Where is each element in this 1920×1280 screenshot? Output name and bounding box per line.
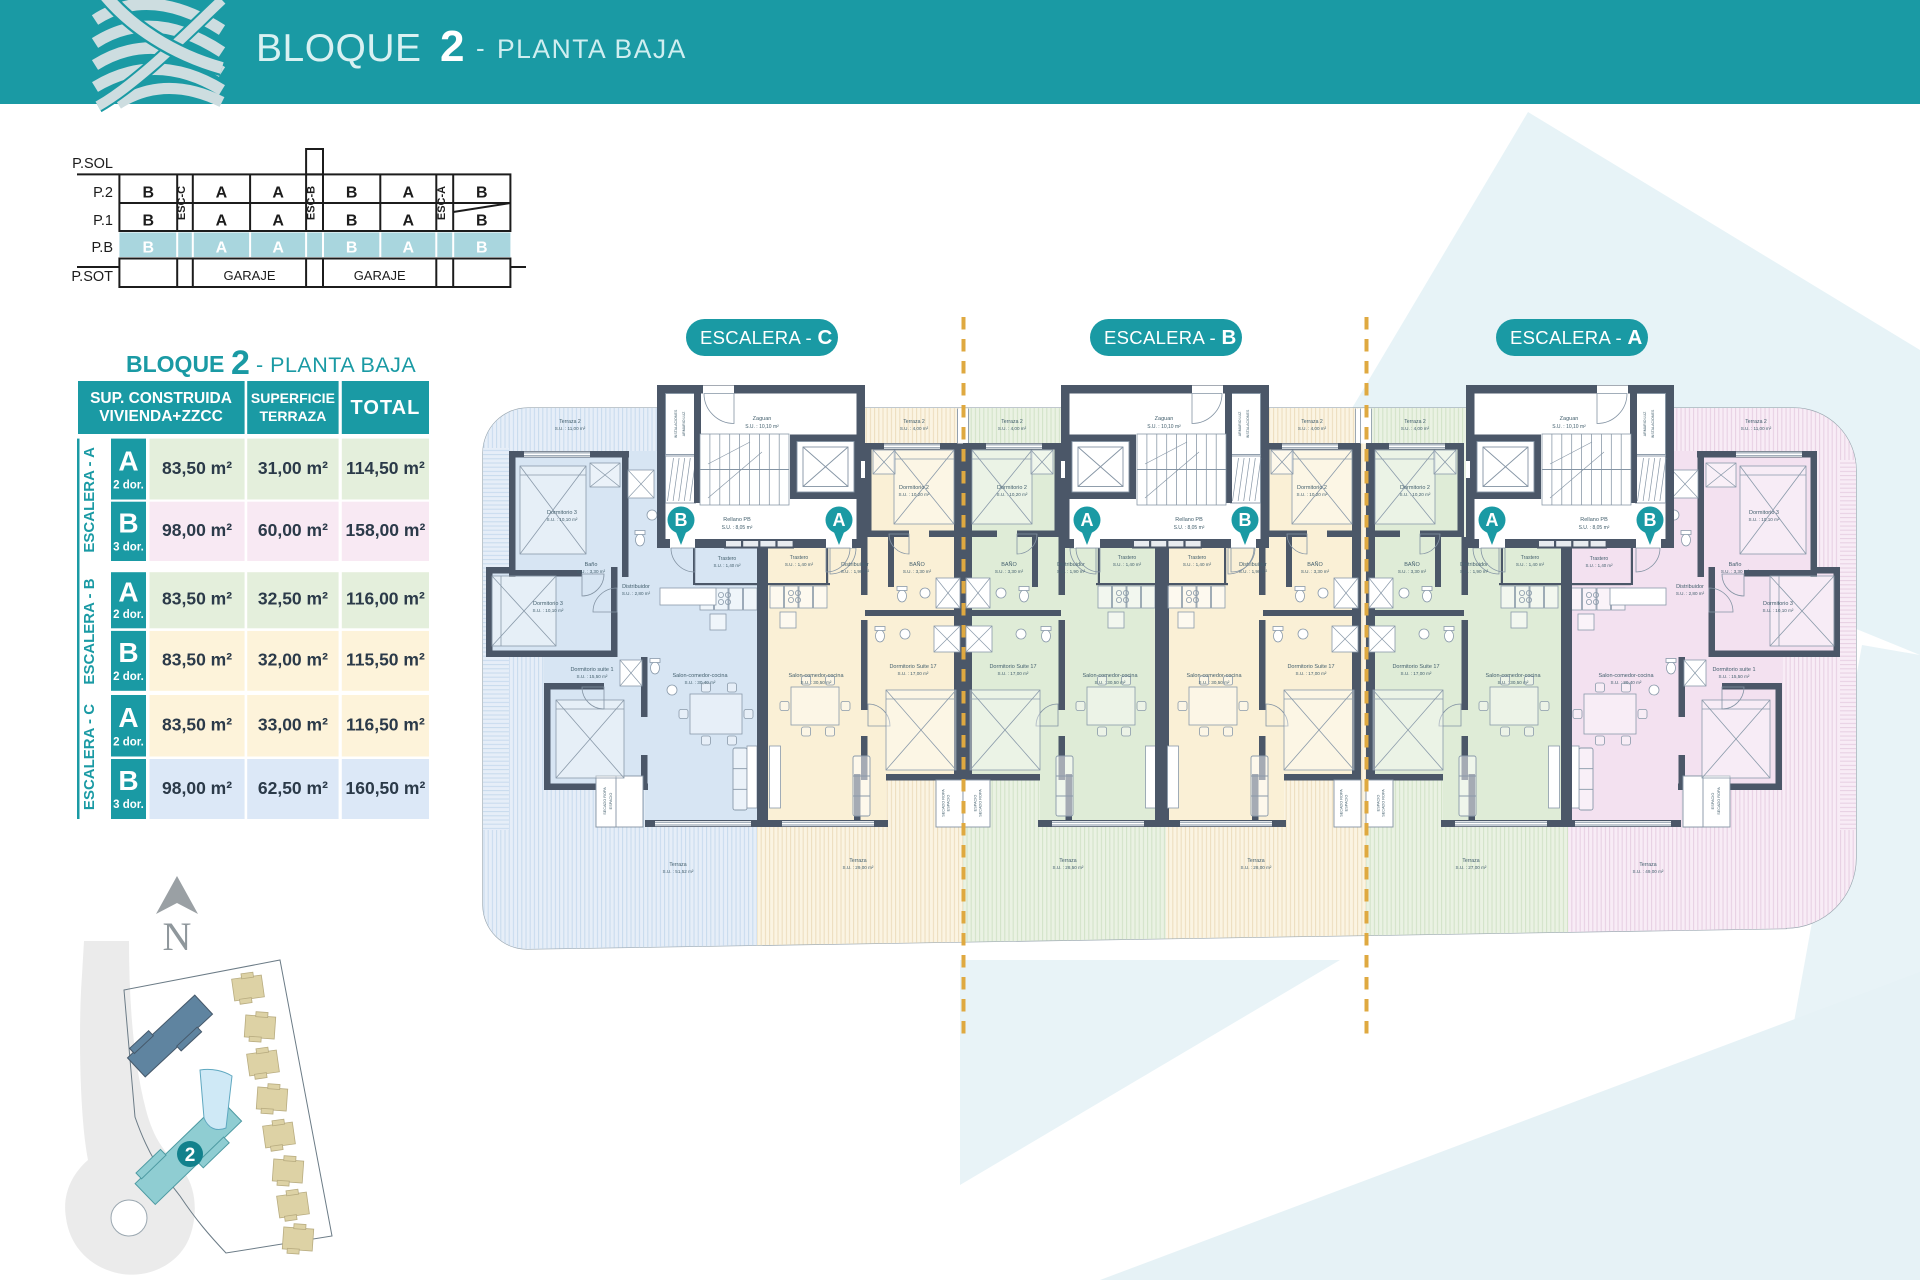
svg-text:Distribuidor: Distribuidor [1676,584,1704,590]
svg-text:Zaguan: Zaguan [753,416,772,422]
svg-text:S.U. : 17,00 m²: S.U. : 17,00 m² [1401,671,1432,676]
svg-text:S.U. : 1,40 m²: S.U. : 1,40 m² [1516,562,1545,567]
svg-text:3 dor.: 3 dor. [113,541,144,553]
svg-text:Trastero: Trastero [790,555,809,561]
svg-text:B: B [118,508,138,539]
svg-text:83,50 m²: 83,50 m² [162,589,232,609]
svg-text:Dormitorio Suite 17: Dormitorio Suite 17 [1392,664,1439,670]
svg-text:B: B [346,185,358,202]
svg-text:S.U. : 2,80 m²: S.U. : 2,80 m² [1676,591,1705,596]
svg-text:33,00 m²: 33,00 m² [258,715,328,735]
svg-text:A: A [403,213,415,230]
svg-text:160,50 m²: 160,50 m² [346,778,426,798]
svg-text:B: B [1239,510,1252,530]
svg-text:98,00 m²: 98,00 m² [162,520,232,540]
svg-text:B: B [143,213,155,230]
svg-text:Dormitorio Suite 17: Dormitorio Suite 17 [1287,664,1334,670]
svg-text:S.U. : 2,80 m²: S.U. : 2,80 m² [622,591,651,596]
svg-text:Rellano PB: Rellano PB [723,517,751,523]
svg-text:ARMARIO LUZ: ARMARIO LUZ [1238,411,1242,436]
svg-text:ESCALERA - B: ESCALERA - B [81,578,98,684]
svg-text:S.U. : 27,00 m²: S.U. : 27,00 m² [1456,865,1487,870]
svg-text:Trastero: Trastero [1521,555,1540,561]
svg-text:31,00 m²: 31,00 m² [258,458,328,478]
svg-text:116,50 m²: 116,50 m² [346,715,425,735]
svg-text:SUPERFICIE: SUPERFICIE [251,390,335,406]
svg-text:A: A [1486,510,1499,530]
svg-text:ESCALERA - C: ESCALERA - C [81,704,98,810]
svg-text:S.U. : 28,00 m²: S.U. : 28,00 m² [1241,865,1272,870]
svg-text:S.U. : 10,20 m²: S.U. : 10,20 m² [1297,492,1328,497]
svg-text:S.U. : 28,50 m²: S.U. : 28,50 m² [1053,865,1084,870]
svg-text:Dormitorio Suite 17: Dormitorio Suite 17 [889,664,936,670]
svg-text:Terraza 2: Terraza 2 [1745,419,1767,425]
svg-text:2 dor.: 2 dor. [113,736,144,748]
svg-text:B: B [476,213,488,230]
svg-text:ESPACIO: ESPACIO [947,795,951,812]
svg-text:2: 2 [231,344,250,382]
svg-text:Dormitorio 3: Dormitorio 3 [533,601,563,607]
svg-text:B: B [346,240,358,257]
svg-text:P.2: P.2 [93,185,113,201]
svg-text:P.1: P.1 [93,213,113,229]
svg-text:S.U. : 8,05 m²: S.U. : 8,05 m² [722,525,753,531]
svg-text:Salon-comedor-cocina: Salon-comedor-cocina [1598,673,1654,679]
svg-text:2 dor.: 2 dor. [113,609,144,621]
svg-text:P.SOL: P.SOL [72,156,113,172]
svg-text:SECADO ROPA: SECADO ROPA [1717,787,1721,815]
svg-text:BAÑO: BAÑO [1307,561,1323,568]
svg-text:Trastero: Trastero [718,556,737,562]
svg-text:INSTALACIONES: INSTALACIONES [1246,409,1250,438]
svg-text:Terraza: Terraza [1059,858,1076,864]
svg-text:A: A [216,240,228,257]
svg-text:Dormitorio Suite 17: Dormitorio Suite 17 [989,664,1036,670]
svg-text:ESC-C: ESC-C [176,186,188,220]
svg-text:116,00 m²: 116,00 m² [346,589,425,609]
svg-text:S.U. : 30,50 m²: S.U. : 30,50 m² [1095,680,1126,685]
svg-text:A: A [833,510,846,530]
svg-text:Terraza: Terraza [1639,862,1656,868]
svg-text:S.U. : 10,20 m²: S.U. : 10,20 m² [1400,492,1431,497]
svg-text:83,50 m²: 83,50 m² [162,458,232,478]
svg-text:S.U. : 51,52 m²: S.U. : 51,52 m² [663,869,694,874]
svg-text:Dormitorio 2: Dormitorio 2 [899,485,929,491]
svg-text:114,50 m²: 114,50 m² [346,458,425,478]
svg-text:Rellano PB: Rellano PB [1580,517,1608,523]
svg-text:32,00 m²: 32,00 m² [258,650,328,670]
svg-text:ESCALERA - B: ESCALERA - B [1104,326,1237,349]
svg-text:Trastero: Trastero [1118,555,1137,561]
svg-text:BAÑO: BAÑO [909,561,925,568]
svg-text:SECADO ROPA: SECADO ROPA [603,787,607,815]
svg-text:S.U. : 3,30 m²: S.U. : 3,30 m² [903,569,932,574]
svg-text:Zaguan: Zaguan [1155,416,1174,422]
svg-text:SECADO ROPA: SECADO ROPA [1382,789,1386,817]
svg-text:B: B [143,240,155,257]
svg-text:Terraza 2: Terraza 2 [903,419,925,425]
svg-text:Terraza: Terraza [1462,858,1479,864]
svg-text:S.U. : 29,00 m²: S.U. : 29,00 m² [843,865,874,870]
svg-text:2 dor.: 2 dor. [113,480,144,492]
svg-text:ESPACIO: ESPACIO [974,795,978,812]
svg-text:Salon-comedor-cocina: Salon-comedor-cocina [1485,673,1541,679]
svg-text:Terraza: Terraza [1247,858,1264,864]
svg-text:62,50 m²: 62,50 m² [258,778,328,798]
svg-text:ESPACIO: ESPACIO [1345,795,1349,812]
svg-text:S.U. : 3,30 m²: S.U. : 3,30 m² [1398,569,1427,574]
svg-text:A: A [272,240,284,257]
svg-text:Trastero: Trastero [1590,556,1609,562]
svg-text:INSTALACIONES: INSTALACIONES [1651,409,1655,438]
svg-text:GARAJE: GARAJE [354,268,406,283]
svg-text:A: A [216,185,228,202]
svg-text:B: B [346,213,358,230]
svg-text:B: B [675,510,688,530]
svg-text:S.U. : 30,40 m²: S.U. : 30,40 m² [1611,680,1642,685]
svg-text:Zaguan: Zaguan [1560,416,1579,422]
svg-text:Terraza 2: Terraza 2 [1001,419,1023,425]
svg-text:S.U. : 1,90 m²: S.U. : 1,90 m² [841,569,870,574]
svg-text:TOTAL: TOTAL [350,397,420,419]
svg-text:A: A [1081,510,1094,530]
svg-text:Terraza 2: Terraza 2 [1301,419,1323,425]
svg-text:S.U. : 1,40 m²: S.U. : 1,40 m² [1183,562,1212,567]
svg-text:A: A [272,213,284,230]
svg-text:A: A [118,576,138,607]
svg-text:Baño: Baño [585,562,598,568]
svg-text:B: B [1644,510,1657,530]
svg-text:ARMARIO LUZ: ARMARIO LUZ [682,411,686,436]
svg-text:SECADO ROPA: SECADO ROPA [942,789,946,817]
svg-text:32,50 m²: 32,50 m² [258,589,328,609]
svg-text:3 dor.: 3 dor. [113,799,144,811]
svg-text:B: B [476,240,488,257]
svg-text:GARAJE: GARAJE [223,268,275,283]
svg-text:S.U. : 30,40 m²: S.U. : 30,40 m² [685,680,716,685]
svg-text:S.U. : 1,90 m²: S.U. : 1,90 m² [1460,569,1489,574]
svg-text:VIVIENDA+ZZCC: VIVIENDA+ZZCC [99,408,223,425]
svg-text:BLOQUE: BLOQUE [126,351,224,377]
svg-text:ESCALERA - A: ESCALERA - A [81,447,98,553]
svg-text:ESC-A: ESC-A [436,186,448,220]
svg-text:A: A [403,185,415,202]
svg-text:Rellano PB: Rellano PB [1175,517,1203,523]
svg-text:S.U. : 10,10 m²: S.U. : 10,10 m² [1147,424,1181,430]
svg-text:S.U. : 1,40 m²: S.U. : 1,40 m² [785,562,814,567]
svg-text:Salon-comedor-cocina: Salon-comedor-cocina [788,673,844,679]
svg-text:A: A [118,702,138,733]
svg-text:S.U. : 10,10 m²: S.U. : 10,10 m² [1763,608,1794,613]
svg-text:Baño: Baño [1729,562,1742,568]
svg-text:A: A [403,240,415,257]
svg-text:Trastero: Trastero [1188,555,1207,561]
svg-text:-: - [476,33,485,63]
svg-text:Salon-comedor-cocina: Salon-comedor-cocina [672,673,728,679]
svg-text:Salon-comedor-cocina: Salon-comedor-cocina [1186,673,1242,679]
svg-text:B: B [476,185,488,202]
svg-text:ESC-B: ESC-B [306,186,318,220]
svg-text:BLOQUE: BLOQUE [256,27,422,70]
svg-text:ESPACIO: ESPACIO [1711,793,1715,810]
svg-text:S.U. : 1,40 m²: S.U. : 1,40 m² [1113,562,1142,567]
svg-text:S.U. : 10,10 m²: S.U. : 10,10 m² [1749,517,1780,522]
svg-text:83,50 m²: 83,50 m² [162,650,232,670]
svg-text:Dormitorio 2: Dormitorio 2 [1297,485,1327,491]
svg-text:SECADO ROPA: SECADO ROPA [979,789,983,817]
svg-text:S.U. : 15,50 m²: S.U. : 15,50 m² [1719,674,1750,679]
svg-text:Terraza 2: Terraza 2 [559,419,581,425]
svg-text:S.U. : 11,00 m²: S.U. : 11,00 m² [555,426,586,431]
svg-text:S.U. : 11,00 m²: S.U. : 11,00 m² [1741,426,1772,431]
svg-text:B: B [118,637,138,668]
svg-text:S.U. : 1,40 m²: S.U. : 1,40 m² [713,563,741,568]
svg-text:ESPACIO: ESPACIO [1377,795,1381,812]
svg-text:S.U. : 1,90 m²: S.U. : 1,90 m² [1239,569,1268,574]
svg-text:S.U. : 3,30 m²: S.U. : 3,30 m² [1721,569,1750,574]
svg-text:158,00 m²: 158,00 m² [346,520,426,540]
svg-text:Salon-comedor-cocina: Salon-comedor-cocina [1082,673,1138,679]
svg-text:2 dor.: 2 dor. [113,671,144,683]
svg-text:A: A [118,445,138,476]
svg-text:N: N [163,914,192,959]
svg-text:115,50 m²: 115,50 m² [346,650,425,670]
svg-text:S.U. : 1,40 m²: S.U. : 1,40 m² [1585,563,1613,568]
svg-text:INSTALACIONES: INSTALACIONES [674,409,678,438]
svg-text:S.U. : 10,20 m²: S.U. : 10,20 m² [899,492,930,497]
svg-text:Dormitorio suite 1: Dormitorio suite 1 [1712,667,1755,673]
svg-text:Dormitorio suite 1: Dormitorio suite 1 [570,667,613,673]
svg-text:Distribuidor: Distribuidor [1460,562,1488,568]
svg-text:A: A [272,185,284,202]
svg-text:B: B [118,765,138,796]
svg-text:S.U. : 3,30 m²: S.U. : 3,30 m² [577,569,606,574]
svg-text:Dormitorio 3: Dormitorio 3 [1763,601,1793,607]
svg-text:ESCALERA - C: ESCALERA - C [700,326,833,349]
svg-text:ESCALERA - A: ESCALERA - A [1510,326,1643,349]
svg-text:S.U. : 1,90 m²: S.U. : 1,90 m² [1057,569,1086,574]
svg-text:98,00 m²: 98,00 m² [162,778,232,798]
svg-text:S.U. : 10,10 m²: S.U. : 10,10 m² [547,517,578,522]
svg-text:S.U. : 17,00 m²: S.U. : 17,00 m² [998,671,1029,676]
svg-text:BAÑO: BAÑO [1001,561,1017,568]
svg-text:Dormitorio 2: Dormitorio 2 [1400,485,1430,491]
svg-text:PLANTA BAJA: PLANTA BAJA [497,34,687,64]
svg-text:2: 2 [185,1145,196,1166]
svg-text:S.U. : 3,30 m²: S.U. : 3,30 m² [1301,569,1330,574]
svg-text:Terraza 2: Terraza 2 [1404,419,1426,425]
svg-text:SECADO ROPA: SECADO ROPA [1340,789,1344,817]
svg-text:S.U. : 8,05 m²: S.U. : 8,05 m² [1579,525,1610,531]
svg-text:S.U. : 10,10 m²: S.U. : 10,10 m² [1552,424,1586,430]
svg-text:P.B: P.B [91,240,113,256]
svg-text:S.U. : 4,00 m²: S.U. : 4,00 m² [1298,426,1327,431]
svg-text:Dormitorio 2: Dormitorio 2 [997,485,1027,491]
svg-text:S.U. : 17,00 m²: S.U. : 17,00 m² [1296,671,1327,676]
svg-text:A: A [216,213,228,230]
svg-text:S.U. : 15,50 m²: S.U. : 15,50 m² [577,674,608,679]
svg-text:S.U. : 17,00 m²: S.U. : 17,00 m² [898,671,929,676]
svg-text:S.U. : 3,30 m²: S.U. : 3,30 m² [995,569,1024,574]
svg-text:S.U. : 4,00 m²: S.U. : 4,00 m² [900,426,929,431]
svg-text:S.U. : 10,10 m²: S.U. : 10,10 m² [745,424,779,430]
svg-text:ESPACIO: ESPACIO [609,793,613,810]
svg-text:60,00 m²: 60,00 m² [258,520,328,540]
svg-text:Distribuidor: Distribuidor [1239,562,1267,568]
svg-text:BAÑO: BAÑO [1404,561,1420,568]
svg-text:B: B [143,185,155,202]
svg-text:S.U. : 30,50 m²: S.U. : 30,50 m² [801,680,832,685]
svg-text:Terraza: Terraza [849,858,866,864]
svg-text:S.U. : 8,05 m²: S.U. : 8,05 m² [1174,525,1205,531]
svg-text:S.U. : 10,20 m²: S.U. : 10,20 m² [997,492,1028,497]
svg-text:S.U. : 30,50 m²: S.U. : 30,50 m² [1199,680,1230,685]
svg-text:S.U. : 4,00 m²: S.U. : 4,00 m² [998,426,1027,431]
svg-text:Dormitorio 3: Dormitorio 3 [547,510,577,516]
svg-text:Terraza: Terraza [669,862,686,868]
svg-text:83,50 m²: 83,50 m² [162,715,232,735]
svg-text:Distribuidor: Distribuidor [622,584,650,590]
svg-text:P.SOT: P.SOT [71,269,113,285]
svg-text:2: 2 [440,22,464,71]
svg-text:Dormitorio 3: Dormitorio 3 [1749,510,1779,516]
svg-text:- PLANTA BAJA: - PLANTA BAJA [256,353,416,377]
svg-text:S.U. : 49,00 m²: S.U. : 49,00 m² [1633,869,1664,874]
svg-text:ARMARIO LUZ: ARMARIO LUZ [1643,411,1647,436]
svg-text:S.U. : 30,50 m²: S.U. : 30,50 m² [1498,680,1529,685]
svg-text:SUP. CONSTRUIDA: SUP. CONSTRUIDA [90,390,232,407]
svg-text:S.U. : 10,10 m²: S.U. : 10,10 m² [533,608,564,613]
svg-text:TERRAZA: TERRAZA [259,408,326,424]
svg-text:S.U. : 4,00 m²: S.U. : 4,00 m² [1401,426,1430,431]
